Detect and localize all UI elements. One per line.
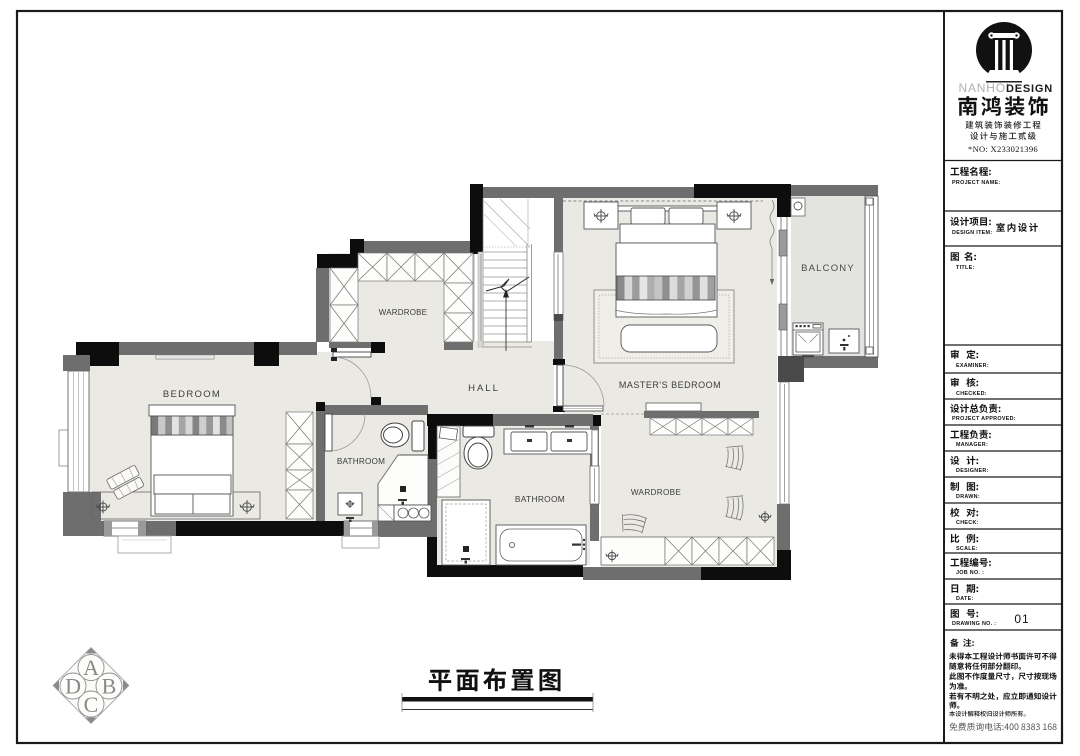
svg-text:DESIGNER:: DESIGNER: — [956, 468, 989, 474]
svg-text:CHECK:: CHECK: — [956, 520, 979, 526]
svg-text:TITLE:: TITLE: — [956, 265, 975, 271]
svg-text:CHECKED:: CHECKED: — [956, 391, 987, 397]
svg-text:B: B — [102, 674, 117, 699]
svg-text:WARDROBE: WARDROBE — [631, 488, 682, 497]
svg-text:BATHROOM: BATHROOM — [515, 494, 565, 504]
svg-text:D: D — [65, 674, 81, 699]
svg-text:PROJECT APPROVED:: PROJECT APPROVED: — [952, 416, 1016, 422]
svg-text:DESIGN: DESIGN — [1006, 83, 1053, 95]
svg-text:EXAMINER:: EXAMINER: — [956, 363, 989, 369]
svg-text:DRAWING NO. :: DRAWING NO. : — [952, 621, 996, 627]
svg-text:PROJECT NAME:: PROJECT NAME: — [952, 180, 1001, 186]
svg-text:MASTER'S BEDROOM: MASTER'S BEDROOM — [619, 380, 721, 390]
svg-text:DESIGN ITEM:: DESIGN ITEM: — [952, 230, 992, 236]
svg-text:DRAWN:: DRAWN: — [956, 494, 980, 500]
svg-text:BATHROOM: BATHROOM — [337, 457, 385, 466]
svg-text:*NO: X233021396: *NO: X233021396 — [968, 144, 1038, 154]
svg-text:BEDROOM: BEDROOM — [163, 389, 221, 400]
svg-text:JOB NO. :: JOB NO. : — [956, 570, 984, 576]
svg-text:WARDROBE: WARDROBE — [379, 308, 427, 317]
svg-text:HALL: HALL — [468, 383, 500, 394]
svg-text:BALCONY: BALCONY — [801, 263, 855, 274]
svg-text:DATE:: DATE: — [956, 596, 974, 602]
svg-text:MANAGER:: MANAGER: — [956, 442, 988, 448]
svg-text:A: A — [83, 655, 99, 680]
svg-text:SCALE:: SCALE: — [956, 546, 978, 552]
svg-text:NANHOI: NANHOI — [959, 81, 1010, 95]
svg-text:01: 01 — [1014, 612, 1029, 626]
svg-text:C: C — [84, 692, 99, 717]
